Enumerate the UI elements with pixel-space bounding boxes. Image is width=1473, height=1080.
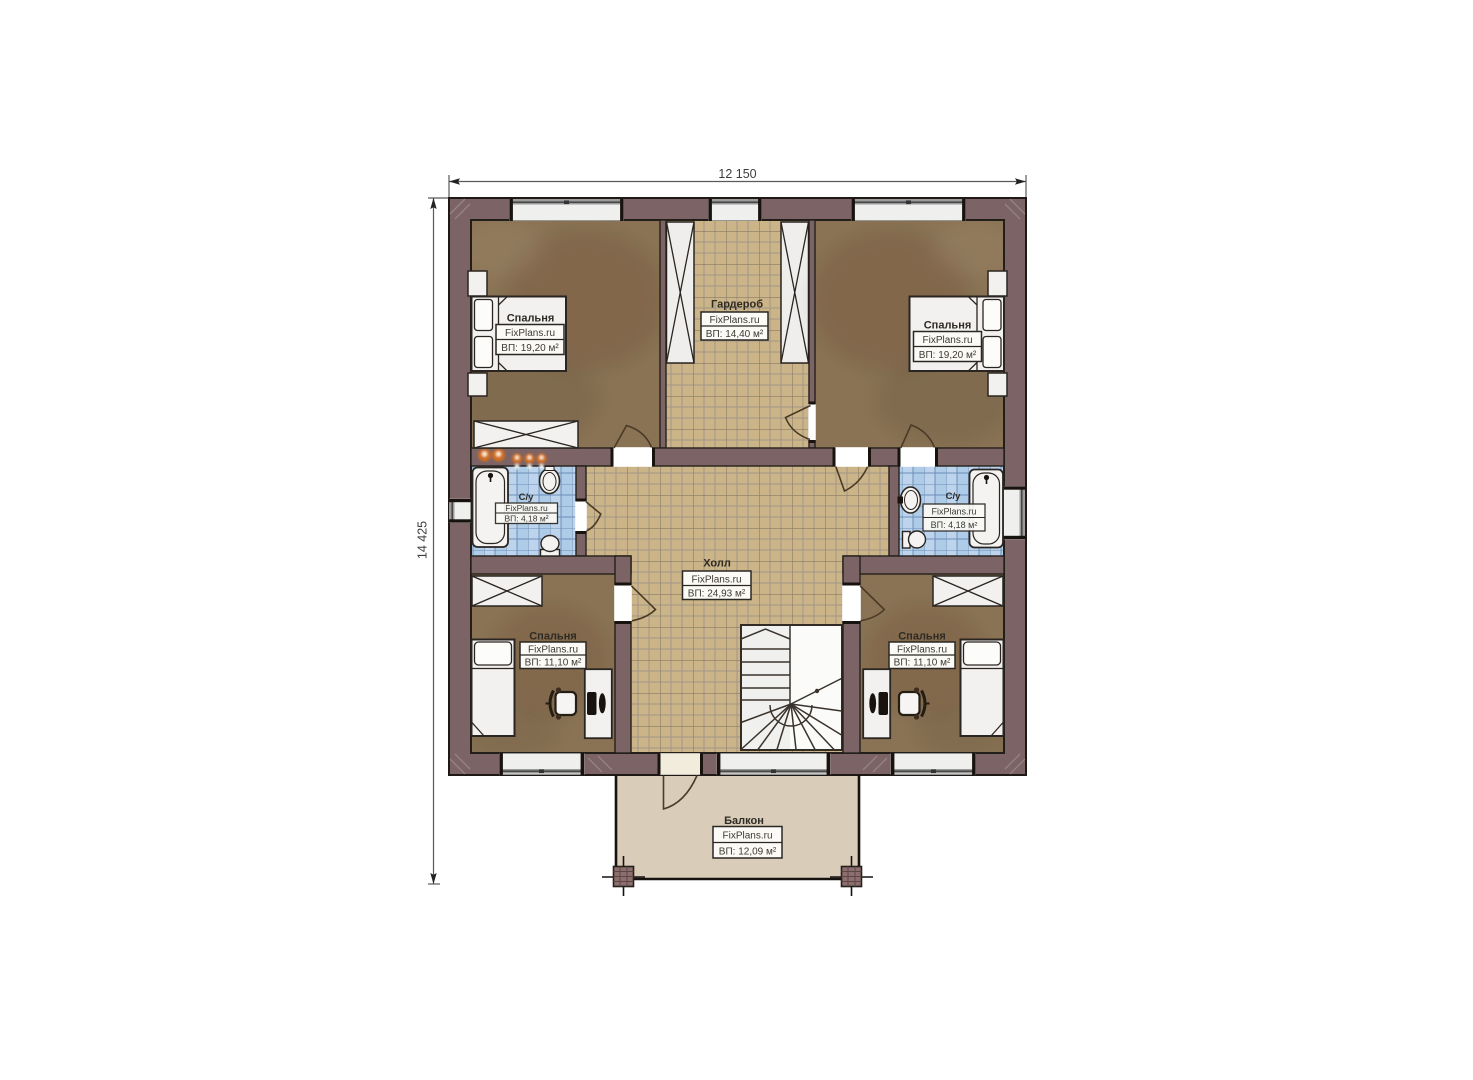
- svg-text:ВП: 4,18 м²: ВП: 4,18 м²: [931, 520, 978, 530]
- svg-text:FixPlans.ru: FixPlans.ru: [931, 507, 976, 517]
- svg-text:Спальня: Спальня: [507, 313, 555, 325]
- svg-text:14 425: 14 425: [416, 521, 430, 559]
- svg-text:FixPlans.ru: FixPlans.ru: [528, 645, 578, 656]
- svg-text:Спальня: Спальня: [898, 631, 946, 643]
- svg-text:ВП: 24,93 м²: ВП: 24,93 м²: [688, 589, 746, 600]
- svg-text:FixPlans.ru: FixPlans.ru: [691, 575, 741, 586]
- svg-text:ВП: 4,18 м²: ВП: 4,18 м²: [504, 514, 548, 524]
- svg-text:ВП: 11,10 м²: ВП: 11,10 м²: [894, 658, 951, 669]
- svg-text:ВП: 19,20 м²: ВП: 19,20 м²: [501, 343, 559, 354]
- svg-text:Спальня: Спальня: [924, 320, 972, 332]
- svg-text:С/у: С/у: [519, 492, 535, 503]
- svg-text:FixPlans.ru: FixPlans.ru: [922, 335, 972, 346]
- svg-text:ВП: 19,20 м²: ВП: 19,20 м²: [919, 350, 977, 361]
- svg-text:ВП: 14,40 м²: ВП: 14,40 м²: [706, 329, 764, 340]
- svg-text:Холл: Холл: [703, 558, 731, 570]
- svg-text:ВП: 12,09 м²: ВП: 12,09 м²: [719, 847, 777, 858]
- svg-text:ВП: 11,10 м²: ВП: 11,10 м²: [525, 658, 582, 669]
- svg-text:FixPlans.ru: FixPlans.ru: [897, 645, 947, 656]
- svg-text:Балкон: Балкон: [724, 815, 764, 827]
- svg-text:С/у: С/у: [946, 491, 962, 502]
- svg-text:12 150: 12 150: [718, 167, 756, 181]
- svg-text:FixPlans.ru: FixPlans.ru: [505, 503, 548, 513]
- svg-text:FixPlans.ru: FixPlans.ru: [722, 831, 772, 842]
- svg-text:FixPlans.ru: FixPlans.ru: [709, 315, 759, 326]
- svg-text:Спальня: Спальня: [529, 631, 577, 643]
- svg-text:Гардероб: Гардероб: [711, 299, 763, 311]
- svg-text:FixPlans.ru: FixPlans.ru: [505, 328, 555, 339]
